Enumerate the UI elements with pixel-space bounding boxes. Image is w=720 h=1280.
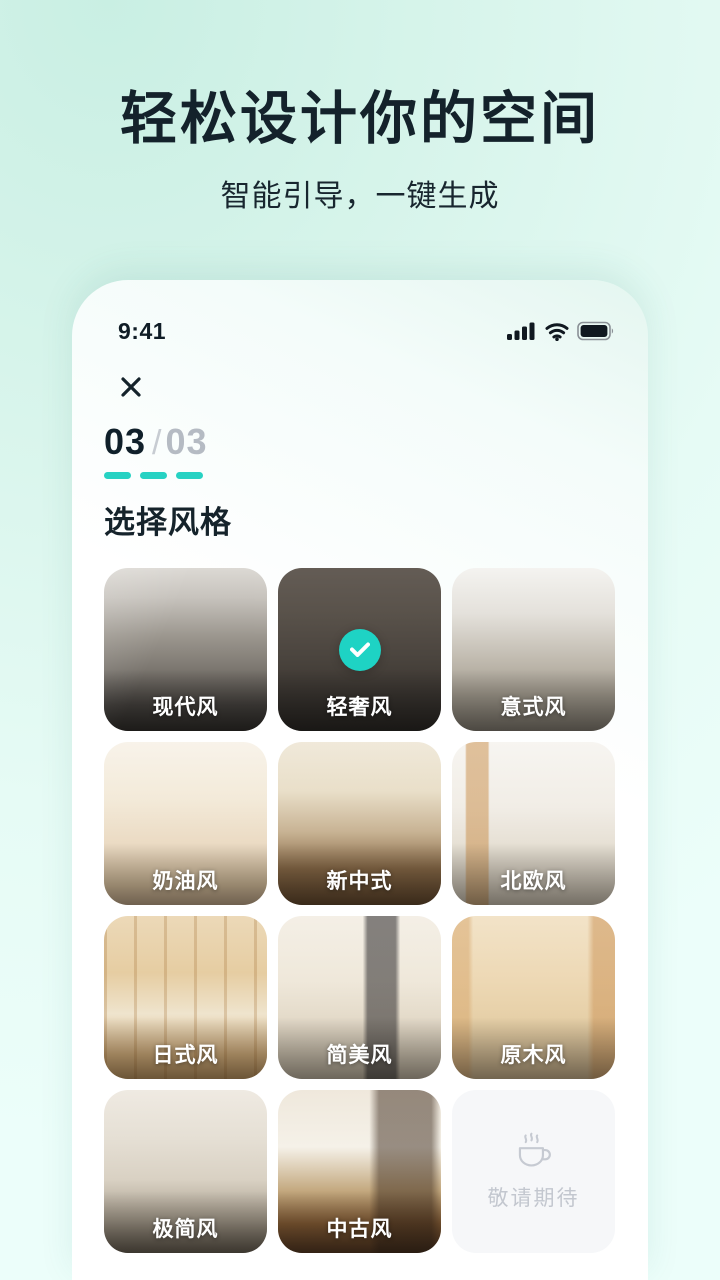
style-label: 轻奢风 (278, 691, 441, 721)
style-tile-nordic[interactable]: 北欧风 (452, 742, 615, 905)
style-tile-mid-century[interactable]: 中古风 (278, 1090, 441, 1253)
style-label: 极简风 (104, 1213, 267, 1243)
progress-indicator: 03 / 03 (104, 424, 615, 479)
progress-dash (140, 472, 167, 479)
style-tile-minimalist[interactable]: 极简风 (104, 1090, 267, 1253)
progress-numbers: 03 / 03 (104, 424, 615, 460)
style-label: 意式风 (452, 691, 615, 721)
hero-title: 轻松设计你的空间 (0, 88, 720, 151)
style-tile-italian[interactable]: 意式风 (452, 568, 615, 731)
progress-divider: / (152, 426, 161, 460)
coming-soon-label: 敬请期待 (488, 1182, 580, 1212)
progress-dashes (104, 472, 615, 479)
style-tile-japanese[interactable]: 日式风 (104, 916, 267, 1079)
status-time: 9:41 (118, 318, 166, 345)
style-tile-raw-wood[interactable]: 原木风 (452, 916, 615, 1079)
close-button[interactable] (116, 372, 146, 402)
style-label: 简美风 (278, 1039, 441, 1069)
style-label: 新中式 (278, 865, 441, 895)
style-tile-cream[interactable]: 奶油风 (104, 742, 267, 905)
style-tile-modern[interactable]: 现代风 (104, 568, 267, 731)
style-label: 中古风 (278, 1213, 441, 1243)
progress-total: 03 (166, 424, 208, 460)
style-tile-new-chinese[interactable]: 新中式 (278, 742, 441, 905)
status-bar: 9:41 (104, 318, 615, 344)
status-icons (507, 321, 615, 341)
section-title: 选择风格 (104, 497, 615, 542)
style-label: 现代风 (104, 691, 267, 721)
coffee-cup-icon (511, 1132, 557, 1172)
selected-check-icon (339, 629, 381, 671)
style-tile-simple-american[interactable]: 简美风 (278, 916, 441, 1079)
battery-icon (577, 321, 615, 341)
close-icon (120, 376, 142, 398)
wifi-icon (545, 322, 569, 341)
progress-dash (104, 472, 131, 479)
progress-dash (176, 472, 203, 479)
style-label: 奶油风 (104, 865, 267, 895)
style-label: 原木风 (452, 1039, 615, 1069)
style-grid: 现代风 轻奢风 意式风 奶油风 新中式 北欧风 (104, 568, 615, 1253)
hero-subtitle: 智能引导，一键生成 (0, 171, 720, 215)
progress-current: 03 (104, 424, 146, 460)
style-label: 北欧风 (452, 865, 615, 895)
style-tile-coming-soon: 敬请期待 (452, 1090, 615, 1253)
style-tile-light-luxury[interactable]: 轻奢风 (278, 568, 441, 731)
style-picker-sheet: 9:41 03 (72, 280, 648, 1280)
style-label: 日式风 (104, 1039, 267, 1069)
hero-banner: 轻松设计你的空间 智能引导，一键生成 (0, 0, 720, 215)
cellular-signal-icon (507, 321, 537, 341)
